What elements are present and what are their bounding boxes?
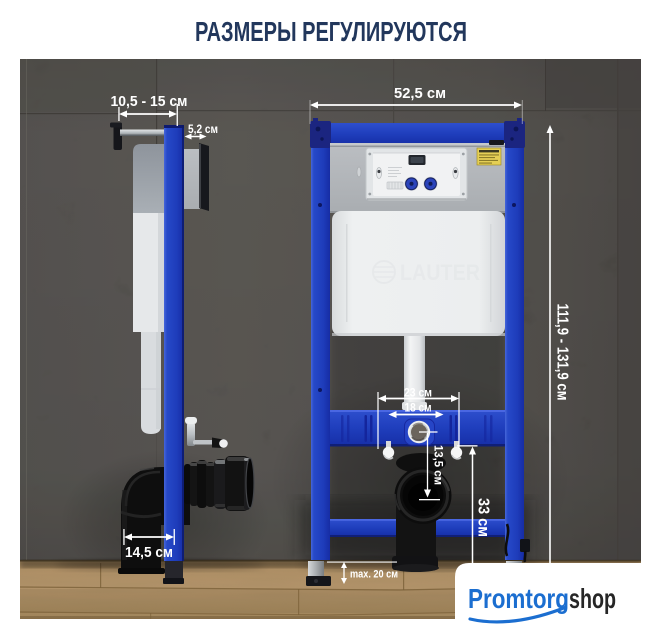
svg-text:shop: shop [569, 583, 616, 614]
svg-text:13,5 см: 13,5 см [432, 445, 444, 485]
svg-text:52,5 см: 52,5 см [394, 85, 446, 102]
svg-text:РАЗМЕРЫ РЕГУЛИРУЮТСЯ: РАЗМЕРЫ РЕГУЛИРУЮТСЯ [195, 16, 467, 47]
svg-text:18 см: 18 см [405, 403, 432, 415]
svg-text:5,2 см: 5,2 см [188, 124, 218, 136]
svg-text:LAUTER: LAUTER [400, 260, 480, 285]
svg-text:Promtorg: Promtorg [468, 583, 569, 614]
svg-text:33 см: 33 см [474, 498, 491, 537]
svg-text:10,5 - 15 см: 10,5 - 15 см [111, 93, 188, 110]
svg-text:14,5 см: 14,5 см [125, 544, 173, 561]
svg-text:max. 20 см: max. 20 см [350, 569, 398, 581]
svg-text:111,9 - 131,9 см: 111,9 - 131,9 см [554, 304, 571, 401]
